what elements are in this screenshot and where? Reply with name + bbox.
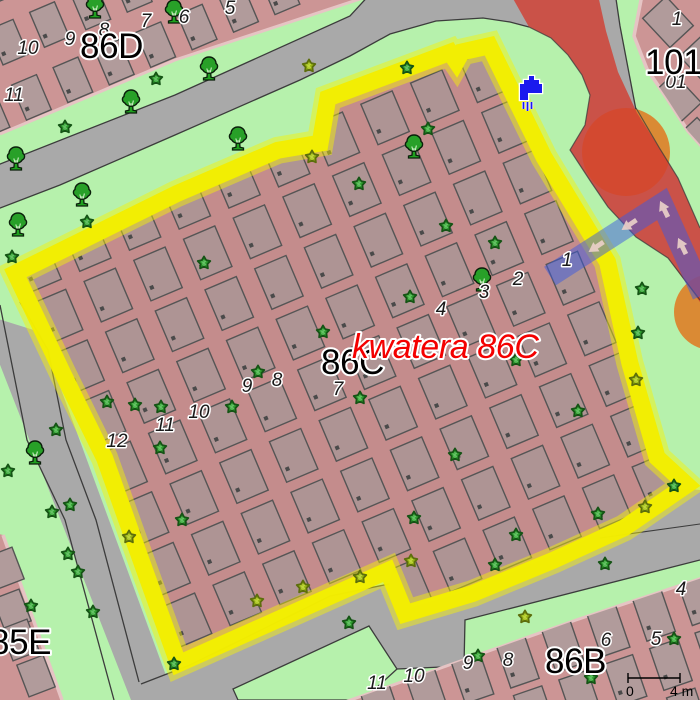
svg-text:9: 9 [463,653,474,674]
svg-text:3: 3 [479,282,490,303]
svg-text:11: 11 [155,415,175,436]
svg-text:2: 2 [512,269,524,290]
svg-text:11: 11 [4,85,24,106]
svg-text:4: 4 [436,299,447,320]
svg-text:1: 1 [562,250,573,271]
svg-text:101: 101 [645,43,700,82]
svg-text:5: 5 [651,629,662,650]
svg-text:8: 8 [503,650,514,671]
svg-text:9: 9 [242,376,253,397]
svg-text:11: 11 [367,673,387,694]
svg-text:86D: 86D [80,27,143,66]
svg-text:86B: 86B [545,642,606,681]
svg-text:85E: 85E [0,623,51,662]
svg-text:6: 6 [179,7,190,28]
svg-text:10: 10 [17,38,39,59]
svg-text:4: 4 [676,579,687,600]
svg-text:10: 10 [403,666,425,687]
svg-text:kwatera 86C: kwatera 86C [352,328,539,366]
svg-text:0: 0 [626,683,634,699]
svg-text:8: 8 [272,370,283,391]
svg-text:12: 12 [106,431,128,452]
svg-text:9: 9 [65,29,76,50]
svg-text:4 m: 4 m [670,683,693,699]
svg-text:1: 1 [672,9,683,30]
svg-text:10: 10 [188,402,210,423]
svg-text:5: 5 [225,0,236,19]
svg-text:7: 7 [333,379,345,400]
